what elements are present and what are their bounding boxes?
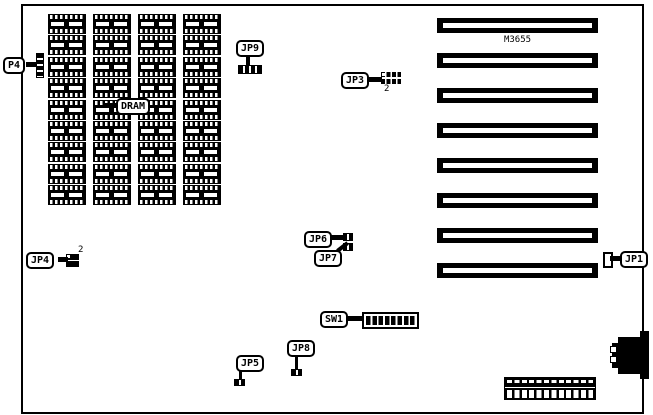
dram-chip [183,35,221,55]
dram-chip [93,142,131,162]
model-number-label: M3655 [437,35,598,45]
dram-chip [183,185,221,205]
keyboard-connector-notch-bottom [610,356,617,363]
dram-chip [48,100,86,120]
dram-chip [48,14,86,34]
jp6-jumper [343,233,353,241]
dram-chip [183,121,221,141]
jp6-callout-arm [330,235,344,240]
dram-chip [138,57,176,77]
sw1-dip-segments [366,316,415,325]
p4-label: P4 [3,57,25,74]
keyboard-connector-body [618,337,642,374]
jp8-label: JP8 [287,340,315,357]
dram-chip [93,57,131,77]
expansion-slot [437,193,598,208]
expansion-slot [437,18,598,33]
jp9-connector [238,65,262,74]
dram-chip [183,14,221,34]
p4-callout-arm [26,62,37,67]
dram-chip [93,78,131,98]
dram-chip [183,142,221,162]
jp8-jumper [291,369,302,376]
jp3-jumper-block [381,72,401,84]
dram-chip [138,164,176,184]
dram-chip [48,164,86,184]
dram-chip [138,185,176,205]
dram-chip [93,185,131,205]
jp1-label: JP1 [620,251,648,268]
expansion-slot [437,88,598,103]
dram-chip [48,185,86,205]
jp3-pin1-marker [382,73,385,76]
dram-chip [93,121,131,141]
dram-chip [138,121,176,141]
dram-chip [48,121,86,141]
dram-chip [93,14,131,34]
jp3-pin2-annotation: 2 [384,84,389,94]
jp4-pin2-annotation: 2 [78,245,83,255]
dram-chip [93,35,131,55]
dram-callout-arm [103,103,117,108]
power-connector [504,377,596,400]
dram-chip [138,14,176,34]
expansion-slot [437,53,598,68]
keyboard-connector-notch-top [610,346,617,353]
jp5-label: JP5 [236,355,264,372]
p4-connector [36,53,44,78]
dram-chip [48,142,86,162]
dram-chip [48,35,86,55]
sw1-dip-switch [362,312,419,329]
expansion-slot [437,123,598,138]
dram-label: DRAM [116,98,150,115]
power-connector-bottom-row [505,387,595,399]
dram-chip [93,164,131,184]
motherboard-diagram: DRAM M3655 P4 JP9 JP3 2 JP4 2 JP6 JP7 JP… [0,0,653,415]
power-connector-top-row [505,378,595,387]
dram-chip [48,57,86,77]
dram-chip [183,78,221,98]
dram-chip [183,57,221,77]
dram-chip [183,100,221,120]
jp4-label: JP4 [26,252,54,269]
dram-chip [138,78,176,98]
sw1-label: SW1 [320,311,348,328]
expansion-slot [437,263,598,278]
jp9-label: JP9 [236,40,264,57]
expansion-slot [437,158,598,173]
dram-chip [48,78,86,98]
jp5-jumper [234,379,245,386]
jp3-label: JP3 [341,72,369,89]
expansion-slot [437,228,598,243]
dram-chip [138,35,176,55]
dram-chip [183,164,221,184]
jp6-label: JP6 [304,231,332,248]
dram-chip [138,142,176,162]
jp4-callout-arm [58,257,68,262]
jp7-label: JP7 [314,250,342,267]
